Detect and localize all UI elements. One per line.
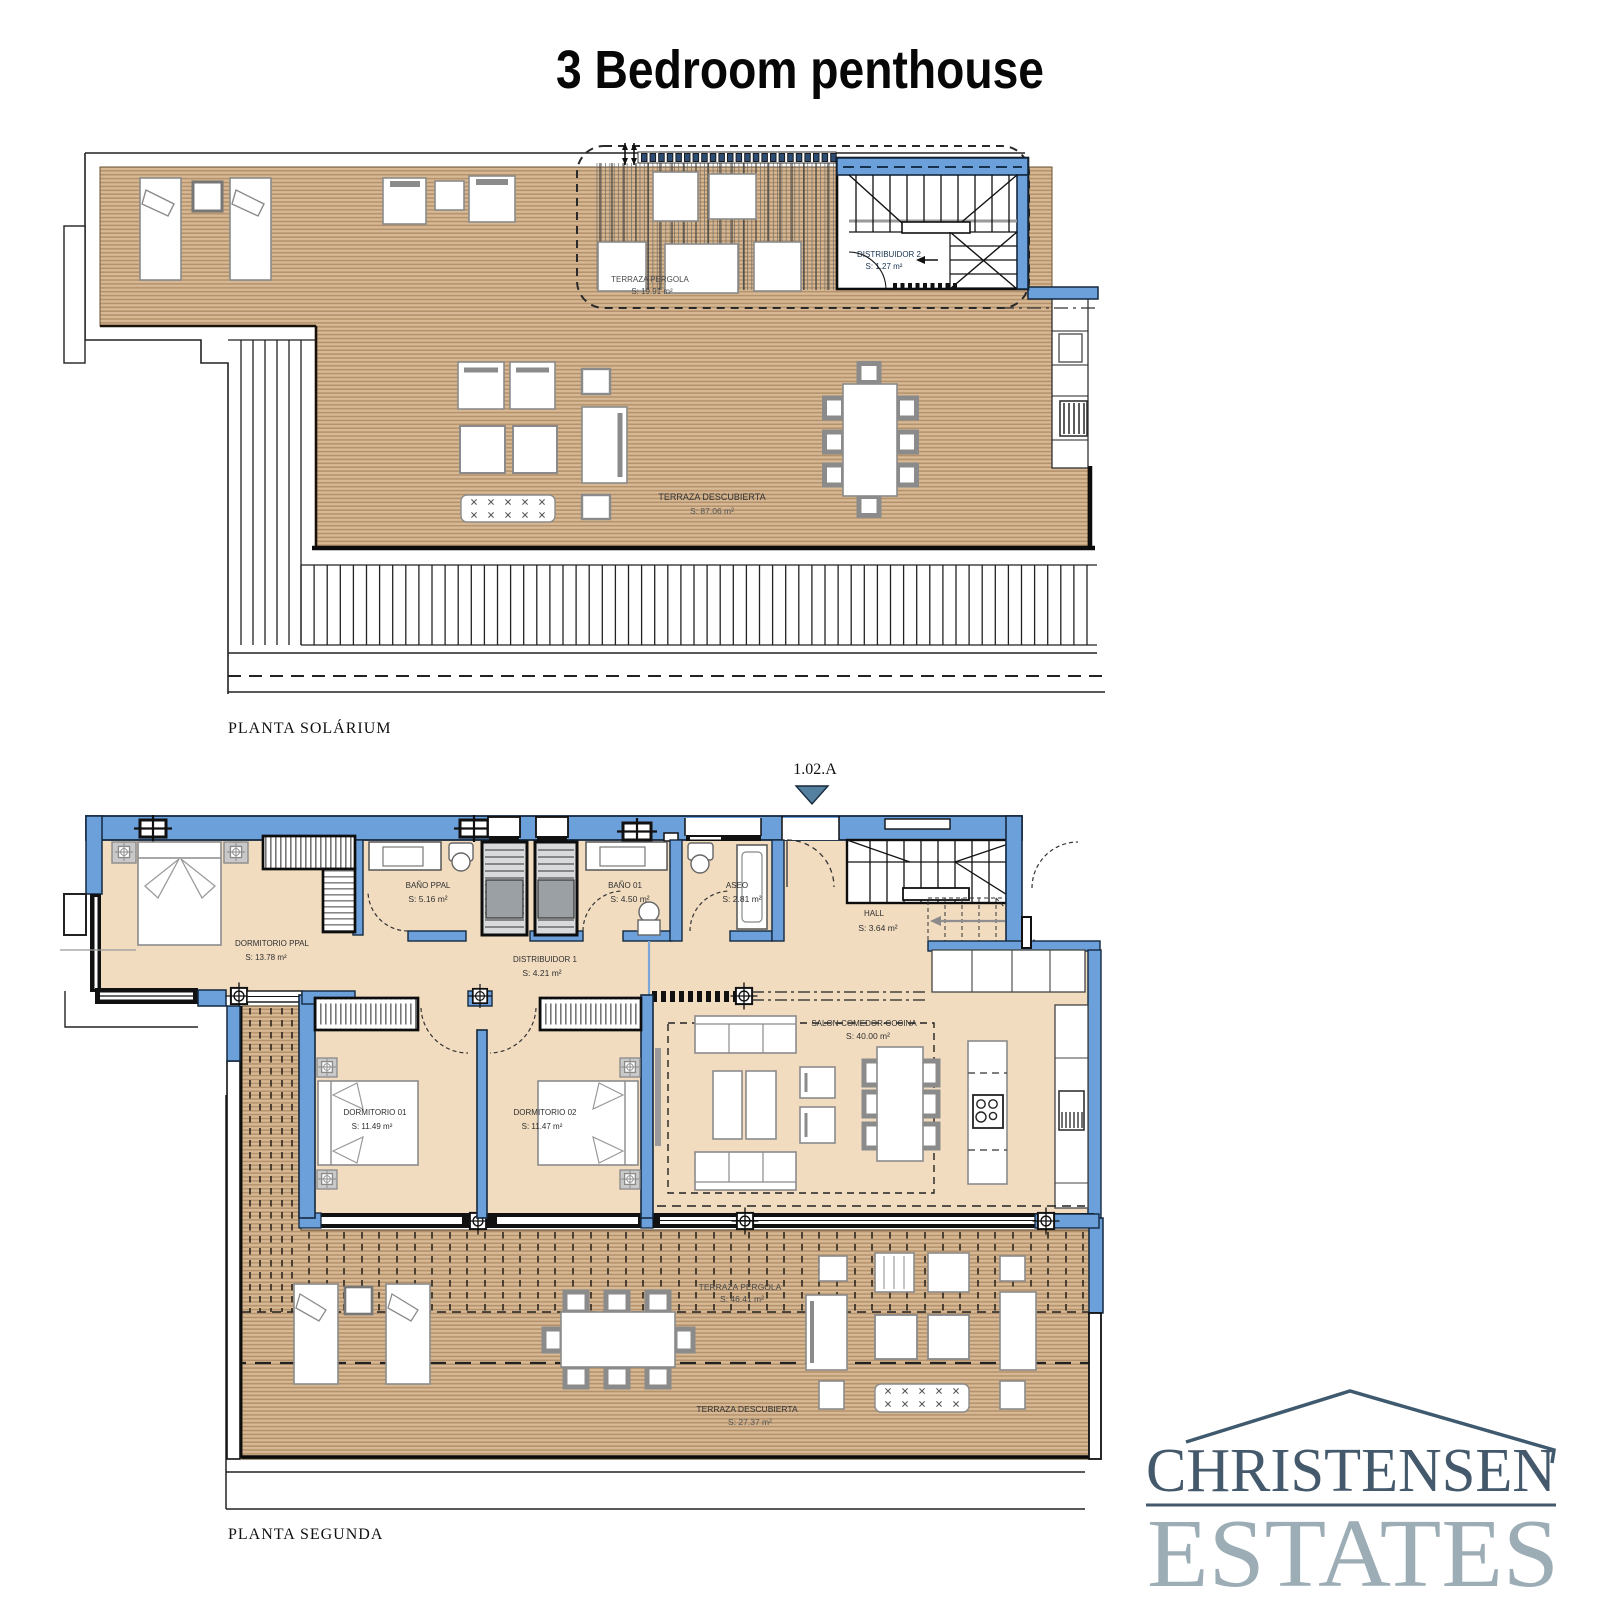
svg-text:BAÑO PPAL: BAÑO PPAL	[406, 881, 451, 890]
svg-text:DORMITORIO PPAL: DORMITORIO PPAL	[235, 939, 309, 948]
svg-text:S: 46.41 m²: S: 46.41 m²	[720, 1294, 764, 1304]
svg-text:S: 4.50 m²: S: 4.50 m²	[610, 894, 649, 904]
svg-text:DORMITORIO 02: DORMITORIO 02	[514, 1108, 578, 1117]
svg-text:CHRISTENSEN: CHRISTENSEN	[1146, 1437, 1556, 1505]
svg-text:DORMITORIO 01: DORMITORIO 01	[344, 1108, 408, 1117]
svg-text:S: 5.16 m²: S: 5.16 m²	[408, 894, 447, 904]
svg-text:PLANTA SEGUNDA: PLANTA SEGUNDA	[228, 1526, 383, 1543]
svg-text:S: 3.64 m²: S: 3.64 m²	[858, 923, 897, 933]
svg-text:BAÑO 01: BAÑO 01	[608, 881, 642, 890]
svg-text:ASEO: ASEO	[726, 881, 748, 890]
svg-text:DISTRIBUIDOR 1: DISTRIBUIDOR 1	[513, 955, 578, 964]
svg-text:DISTRIBUIDOR 2: DISTRIBUIDOR 2	[857, 250, 922, 259]
svg-text:PLANTA SOLÁRIUM: PLANTA SOLÁRIUM	[228, 718, 392, 737]
svg-text:S: 19.91 m²: S: 19.91 m²	[631, 287, 673, 296]
svg-text:S: 1.27 m²: S: 1.27 m²	[866, 262, 903, 271]
svg-text:TERRAZA DESCUBIERTA: TERRAZA DESCUBIERTA	[658, 492, 765, 502]
svg-text:S: 11.49 m²: S: 11.49 m²	[352, 1122, 393, 1131]
svg-text:S: 40.00 m²: S: 40.00 m²	[846, 1031, 890, 1041]
svg-text:S: 11.47 m²: S: 11.47 m²	[522, 1122, 563, 1131]
svg-text:S: 87.06 m²: S: 87.06 m²	[690, 506, 734, 516]
svg-text:SALON-COMEDOR-COCINA: SALON-COMEDOR-COCINA	[811, 1019, 917, 1028]
svg-text:S: 4.21 m²: S: 4.21 m²	[522, 968, 561, 978]
svg-text:S: 13.78 m²: S: 13.78 m²	[245, 953, 287, 962]
svg-text:3 Bedroom penthouse: 3 Bedroom penthouse	[556, 40, 1044, 100]
svg-text:HALL: HALL	[864, 909, 885, 918]
svg-text:TERRAZA PERGOLA: TERRAZA PERGOLA	[699, 1282, 782, 1292]
svg-text:ESTATES: ESTATES	[1147, 1500, 1559, 1600]
svg-text:TERRAZA PERGOLA: TERRAZA PERGOLA	[611, 275, 689, 284]
svg-text:S: 27.37 m²: S: 27.37 m²	[728, 1417, 772, 1427]
svg-text:TERRAZA DESCUBIERTA: TERRAZA DESCUBIERTA	[696, 1404, 798, 1414]
svg-text:S: 2.81 m²: S: 2.81 m²	[722, 894, 761, 904]
svg-text:1.02.A: 1.02.A	[793, 761, 837, 778]
